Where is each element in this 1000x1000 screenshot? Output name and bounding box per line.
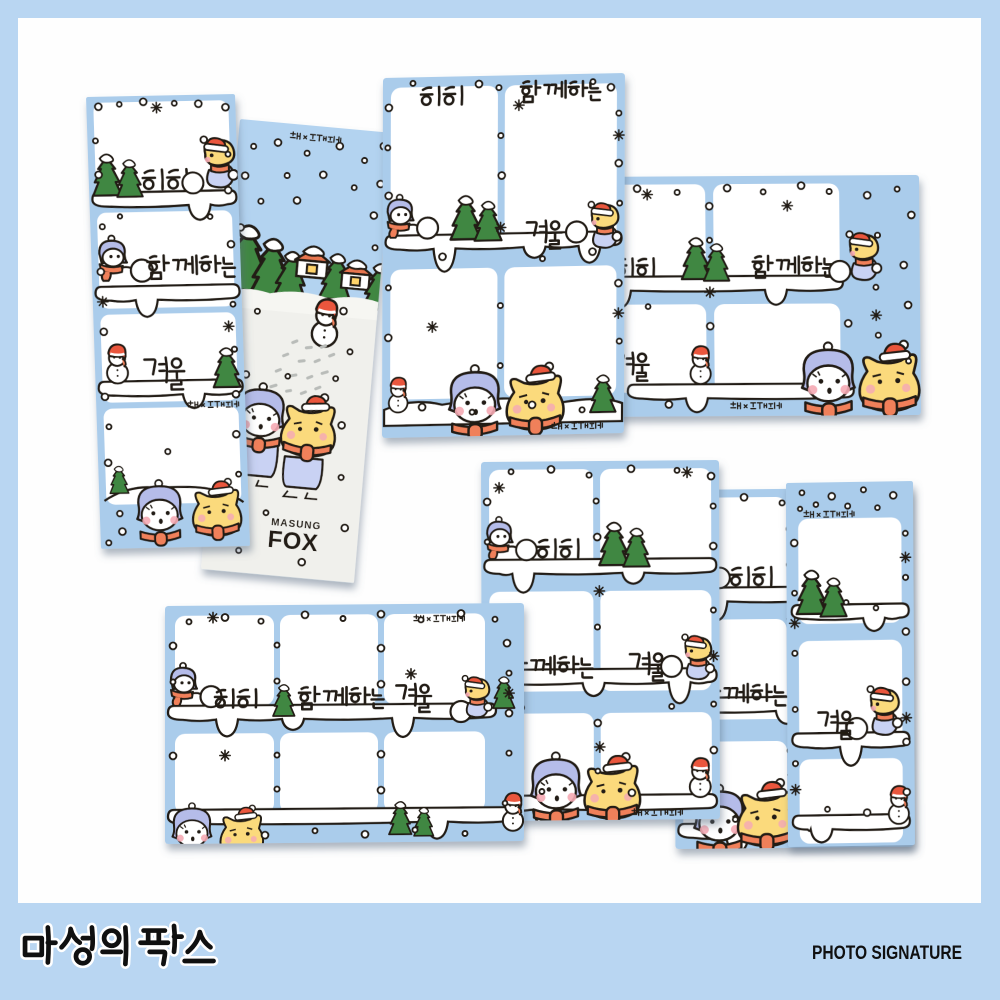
svg-text:PHOTO SIGNATURE: PHOTO SIGNATURE <box>812 943 962 964</box>
svg-text:FOX: FOX <box>266 526 319 558</box>
